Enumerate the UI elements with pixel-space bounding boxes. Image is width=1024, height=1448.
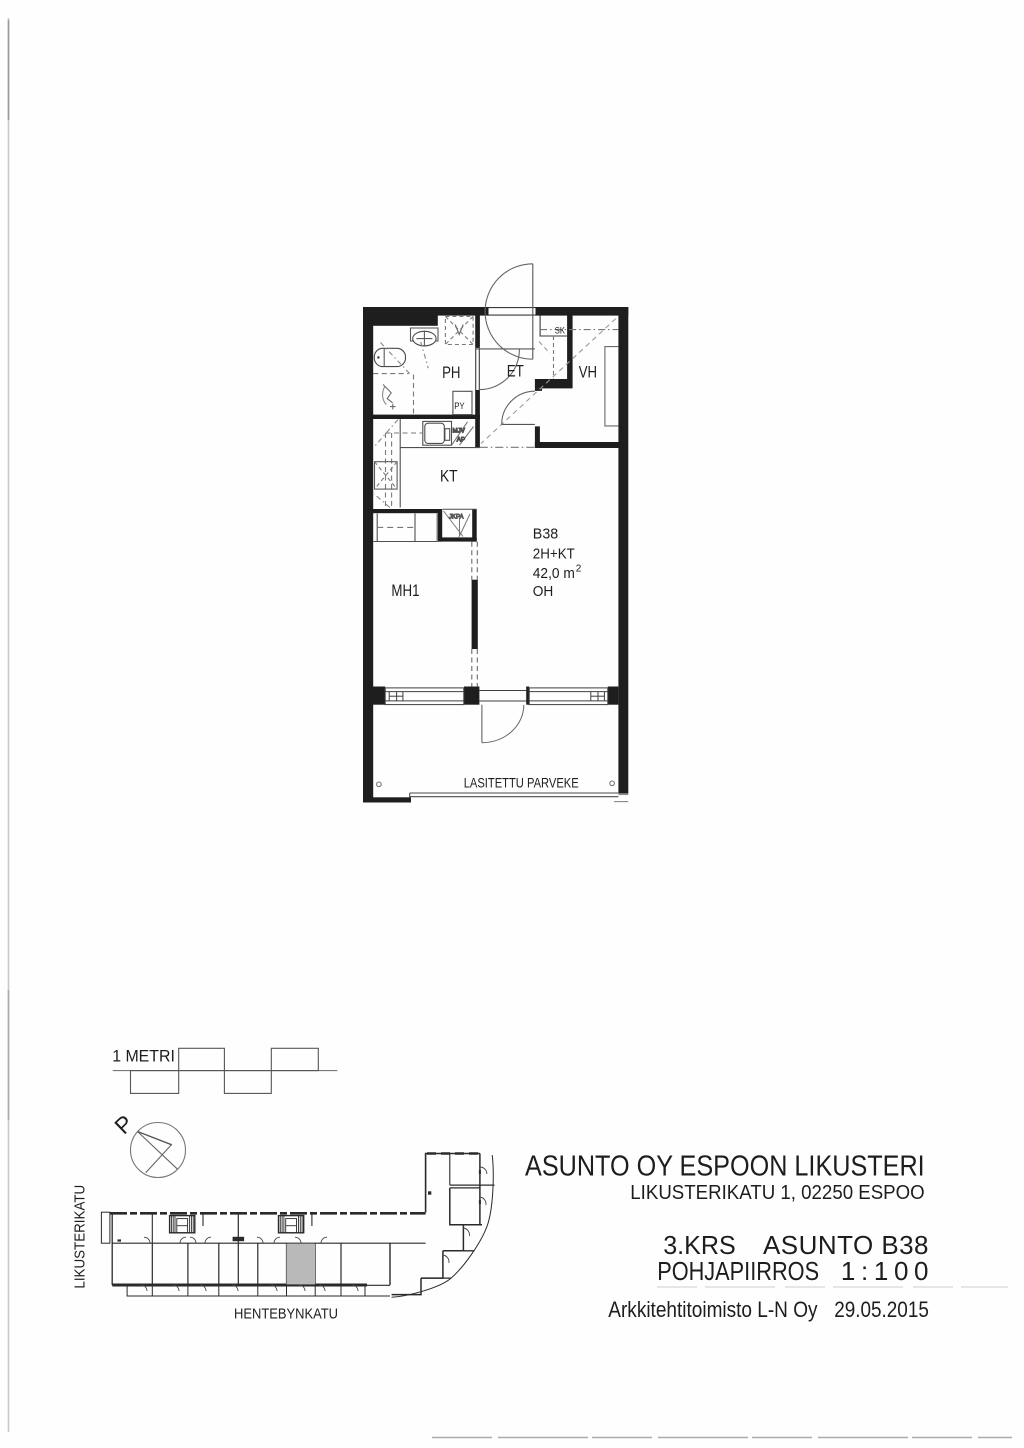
svg-text:AP: AP [457,437,465,444]
svg-text:PH: PH [442,363,460,382]
svg-text:ET: ET [507,362,524,381]
svg-text:LASITETTU PARVEKE: LASITETTU PARVEKE [464,775,579,790]
svg-text:LIKUSTERIKATU 1, 02250 ESPOO: LIKUSTERIKATU 1, 02250 ESPOO [630,1181,924,1204]
svg-text:29.05.2015: 29.05.2015 [834,1297,929,1322]
svg-text:2H+KT: 2H+KT [533,546,575,563]
svg-text:VH: VH [579,363,597,382]
svg-text:SK: SK [555,325,565,335]
svg-text:B38: B38 [533,525,558,542]
svg-text:1 METRI: 1 METRI [112,1048,175,1066]
svg-text:42,0 m: 42,0 m [533,565,575,582]
svg-text:1:100: 1:100 [841,1256,929,1286]
svg-text:ASUNTO OY ESPOON LIKUSTERI: ASUNTO OY ESPOON LIKUSTERI [525,1151,925,1183]
svg-text:HENTEBYNKATU: HENTEBYNKATU [234,1307,338,1323]
svg-text:2: 2 [576,564,582,575]
svg-text:KT: KT [440,467,458,486]
svg-text:MH1: MH1 [391,581,419,600]
svg-text:PY: PY [454,401,465,411]
svg-text:JKPA: JKPA [449,515,464,521]
svg-text:OH: OH [533,583,554,600]
svg-text:POHJAPIIRROS: POHJAPIIRROS [657,1256,819,1286]
svg-text:Arkkitehtitoimisto L-N Oy: Arkkitehtitoimisto L-N Oy [608,1297,818,1322]
svg-text:MJV: MJV [453,427,466,434]
svg-text:LIKUSTERIKATU: LIKUSTERIKATU [73,1185,89,1289]
